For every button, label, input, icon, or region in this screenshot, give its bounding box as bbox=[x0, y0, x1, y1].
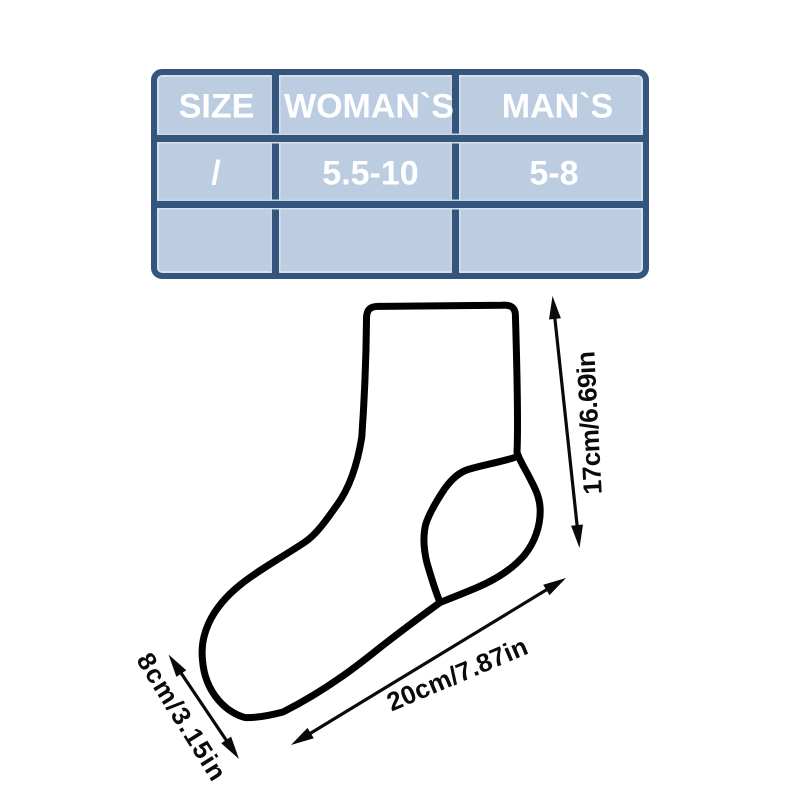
svg-text:17cm/6.69in: 17cm/6.69in bbox=[570, 351, 607, 495]
